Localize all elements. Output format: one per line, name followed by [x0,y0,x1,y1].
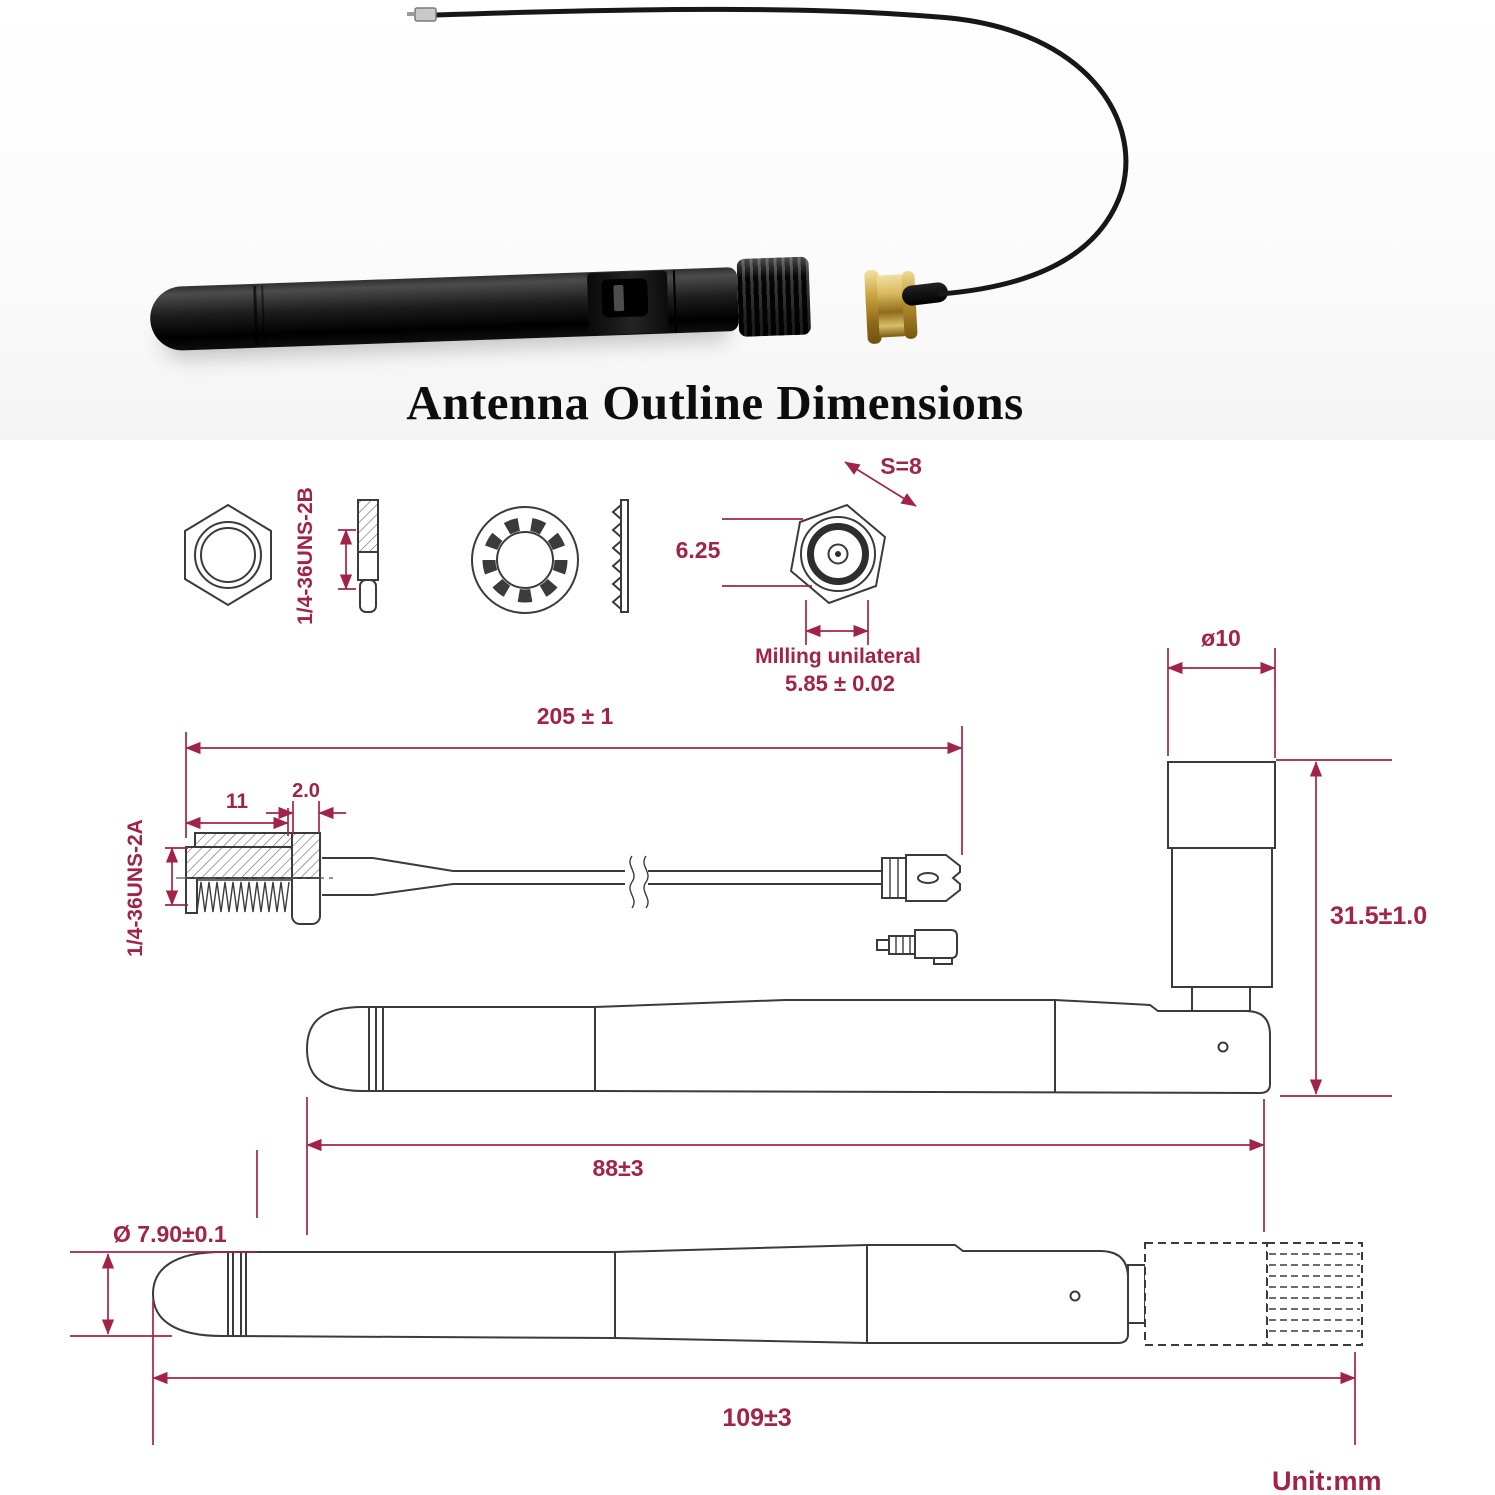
antenna-length-label: 109±3 [722,1404,791,1432]
milling-label: Milling unilateral [755,645,921,668]
straight-antenna-body [153,1245,1145,1343]
straight-antenna-hinge-hidden [1145,1243,1362,1345]
hex-nut-side-view: 1/4-36UNS-2B [294,487,378,625]
product-dimension-sheet: Antenna Outline Dimensions [0,0,1495,1495]
folded-length-dimension: 88±3 [307,1097,1264,1235]
ipex-connector-top-view [882,855,960,901]
nut-side-dimension [338,530,356,589]
thread-spec-2a-label: 1/4-36UNS-2A [124,819,147,957]
pigtail-cable [322,856,884,908]
sma-diameter-dimension: 6.25 [676,519,812,586]
thread-length-label: 11 [226,790,249,813]
sma-diameter-label: 6.25 [676,537,721,563]
connector-height-label: 31.5±1.0 [1330,902,1427,930]
photo-cable [407,8,1126,294]
jack-thread-spec-dimension: 1/4-36UNS-2A [124,819,188,957]
body-diameter-label: Ø 7.90±0.1 [113,1221,227,1247]
hex-nut-front-view [185,505,271,605]
technical-drawing: 1/4-36UNS-2B S=8 6.25 [0,0,1495,1495]
ipex-connector-side-view [877,930,957,964]
sma-across-flats-dimension: S=8 [845,453,922,506]
folded-antenna-view: ø10 31.5±1.0 88±3 [307,625,1427,1235]
folded-antenna-body [307,1000,1270,1093]
connector-diameter-label: ø10 [1201,625,1241,651]
thread-spec-2b-label: 1/4-36UNS-2B [294,487,317,625]
sma-face-view: S=8 6.25 Milling unilateral 5.85 ± 0.02 [676,453,922,696]
milling-dimension: Milling unilateral 5.85 ± 0.02 [755,600,921,696]
sma-jack-section [176,833,338,924]
folded-length-label: 88±3 [593,1155,644,1181]
photo-ipex-connector [415,8,436,21]
flange-thickness-dimension: 2.0 [266,780,346,833]
pigtail-assembly-view: 205 ± 1 11 2.0 1/4-36UNS-2A [124,703,962,964]
serrated-washer-side-view [613,500,628,612]
milling-value: 5.85 ± 0.02 [785,671,895,696]
connector-diameter-dimension: ø10 [1168,625,1275,758]
folded-antenna-connector [1168,762,1275,1011]
unit-label: Unit:mm [1272,1466,1382,1495]
flange-thickness-label: 2.0 [292,780,320,802]
across-flats-label: S=8 [880,453,922,479]
star-lock-washer-front-view [472,507,578,613]
pigtail-length-label: 205 ± 1 [537,703,614,729]
connector-height-dimension: 31.5±1.0 [1276,760,1427,1096]
straight-antenna-view: Ø 7.90±0.1 109±3 Unit:mm [70,1150,1382,1495]
